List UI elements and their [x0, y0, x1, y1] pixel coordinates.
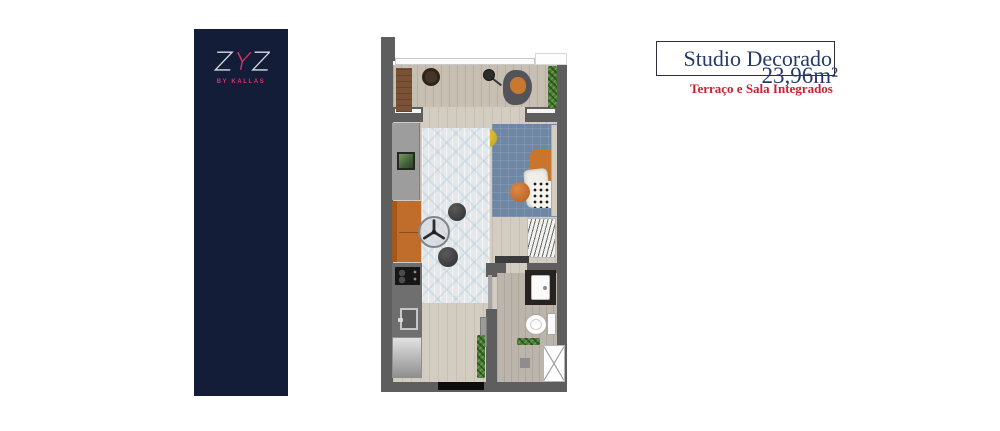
- logo-letter-z2: [251, 52, 270, 70]
- entry-mat-icon: [438, 382, 484, 390]
- terrace-rug-icon: [396, 68, 412, 112]
- vanity-sink-icon: [531, 275, 550, 300]
- partition-wall: [486, 309, 497, 382]
- shower-drain-icon: [520, 358, 530, 368]
- dresser-icon: [495, 256, 529, 263]
- toilet-icon: [525, 314, 547, 335]
- knot-cushion-icon: [510, 182, 530, 202]
- page: { "banner": { "logo_text": "ZYZ", "tagli…: [0, 0, 1000, 431]
- terrace-rail: [395, 58, 535, 65]
- terrace-coffee-table-icon: [422, 68, 440, 86]
- tv-icon: [397, 152, 415, 170]
- refrigerator-icon: [392, 337, 422, 378]
- round-dining-table-icon: [418, 216, 450, 248]
- floor-plan: [381, 37, 568, 392]
- wall-stub: [381, 37, 395, 61]
- bathroom-wall: [486, 263, 506, 273]
- sofa-icon: [392, 201, 421, 262]
- shower-box-icon: [543, 345, 565, 382]
- zyz-logo-icon: [212, 49, 270, 74]
- bed-icon: [492, 124, 557, 217]
- terrace-rail-corner: [535, 53, 567, 65]
- kitchen-sink-icon: [400, 308, 418, 330]
- terrace-floor: [393, 65, 557, 107]
- cooktop-icon: [395, 267, 420, 285]
- stool-icon: [438, 247, 458, 267]
- plant-shelf-icon: [517, 338, 540, 345]
- brand-tagline: BY KALLAS: [194, 79, 288, 85]
- sliding-door-icon: [488, 275, 492, 309]
- bathroom-vanity-icon: [525, 270, 556, 305]
- stool-icon: [448, 203, 466, 221]
- floor-lamp-icon: [483, 69, 495, 81]
- hall-planter-icon: [477, 335, 485, 378]
- logo-letter-z1: [213, 52, 234, 70]
- wardrobe-icon: [527, 218, 556, 258]
- headboard-icon: [551, 125, 557, 216]
- toilet-tank-icon: [547, 313, 556, 335]
- window-sill-icon: [527, 109, 555, 113]
- subtitle: Terraço e Sala Integrados: [690, 81, 830, 97]
- logo-letter-y: [234, 52, 251, 70]
- armchair-cushion-icon: [510, 77, 526, 94]
- brand-banner: BY KALLAS: [194, 29, 288, 396]
- planter-icon: [548, 66, 557, 108]
- wall-right: [557, 65, 567, 392]
